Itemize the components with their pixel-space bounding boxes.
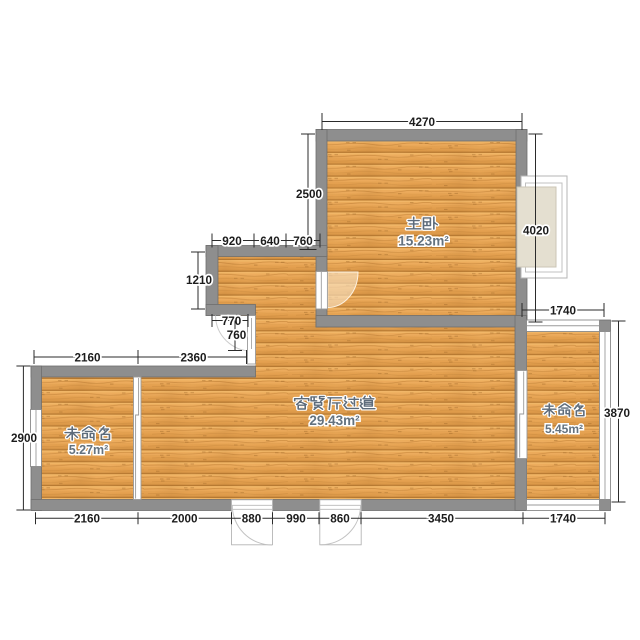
- svg-text:5.27m²: 5.27m²: [69, 443, 109, 457]
- svg-text:1740: 1740: [550, 304, 577, 317]
- svg-text:2000: 2000: [171, 513, 198, 526]
- svg-text:5.45m²: 5.45m²: [545, 422, 583, 436]
- svg-text:1740: 1740: [550, 513, 577, 526]
- svg-text:15.23m²: 15.23m²: [398, 234, 449, 249]
- svg-text:990: 990: [286, 513, 306, 526]
- svg-text:920: 920: [222, 235, 242, 248]
- svg-text:880: 880: [242, 513, 262, 526]
- svg-text:3870: 3870: [604, 407, 631, 420]
- svg-text:2900: 2900: [11, 432, 38, 445]
- svg-text:860: 860: [330, 513, 350, 526]
- svg-text:4020: 4020: [523, 224, 550, 237]
- svg-text:770: 770: [222, 315, 242, 328]
- svg-text:1210: 1210: [186, 274, 213, 287]
- svg-text:760: 760: [293, 235, 313, 248]
- svg-text:4270: 4270: [409, 116, 436, 129]
- svg-text:2160: 2160: [74, 351, 101, 364]
- svg-text:3450: 3450: [428, 513, 455, 526]
- svg-text:640: 640: [260, 235, 280, 248]
- svg-text:2500: 2500: [296, 188, 323, 201]
- svg-text:760: 760: [227, 329, 247, 342]
- svg-text:2360: 2360: [180, 351, 207, 364]
- svg-text:2160: 2160: [74, 513, 101, 526]
- svg-text:29.43m²: 29.43m²: [309, 413, 360, 428]
